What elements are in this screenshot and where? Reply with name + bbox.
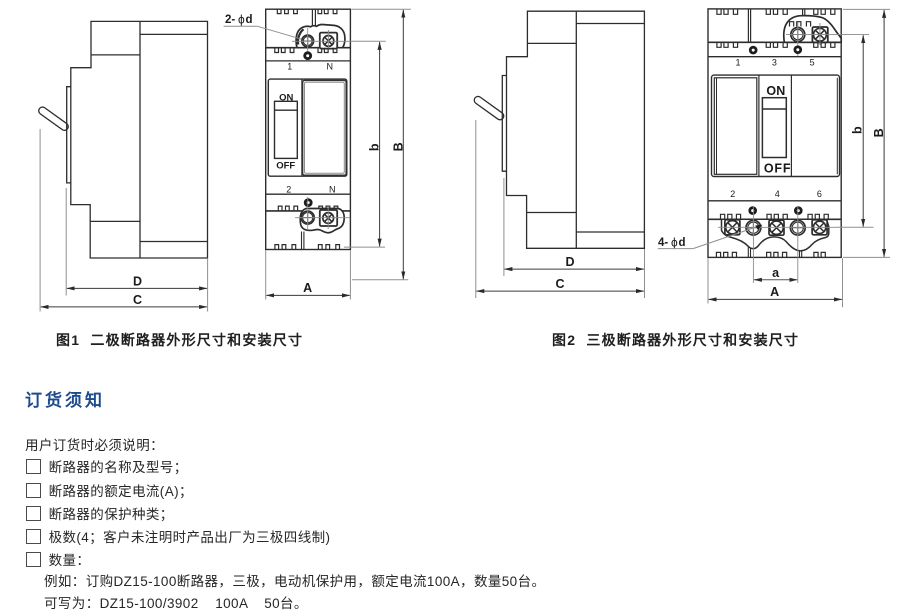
svg-text:2-: 2- (225, 14, 235, 26)
svg-text:5: 5 (810, 58, 815, 68)
svg-text:4: 4 (775, 189, 780, 199)
svg-text:1: 1 (735, 58, 740, 68)
svg-text:D: D (133, 274, 142, 288)
svg-text:A: A (303, 281, 312, 295)
svg-text:a: a (772, 266, 780, 280)
svg-text:ON: ON (766, 84, 785, 98)
svg-text:N: N (327, 62, 334, 72)
svg-text:OFF: OFF (764, 161, 791, 175)
svg-text:OFF: OFF (276, 160, 295, 171)
svg-text:3: 3 (772, 58, 777, 68)
svg-text:ϕ: ϕ (671, 236, 678, 250)
svg-text:d: d (246, 14, 253, 26)
svg-text:N: N (329, 185, 336, 195)
svg-text:b: b (851, 126, 865, 134)
svg-text:D: D (565, 255, 574, 269)
svg-text:b: b (367, 143, 381, 151)
svg-text:B: B (872, 128, 886, 137)
svg-text:A: A (770, 285, 779, 299)
svg-text:ϕ: ϕ (238, 13, 245, 27)
svg-text:6: 6 (817, 189, 822, 199)
svg-text:4-: 4- (658, 237, 668, 249)
svg-text:B: B (391, 142, 405, 151)
svg-text:2: 2 (730, 189, 735, 199)
svg-text:1: 1 (287, 62, 292, 72)
svg-text:d: d (679, 237, 686, 249)
svg-text:2: 2 (286, 185, 291, 195)
svg-text:C: C (133, 293, 142, 307)
svg-text:C: C (555, 277, 564, 291)
